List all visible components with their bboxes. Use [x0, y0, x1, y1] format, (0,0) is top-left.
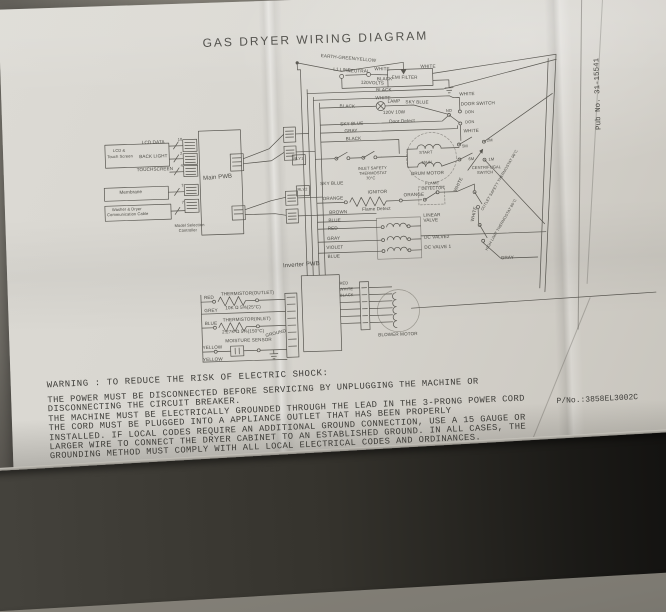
- wire-label: RLY1: [293, 157, 303, 161]
- wire-label: 70°C: [366, 176, 375, 180]
- wire-label: 4: [180, 164, 182, 168]
- wire-label: GREY: [204, 309, 218, 314]
- wire-label: SKY BLUE: [405, 100, 428, 105]
- wire-label: GRAY: [327, 237, 340, 242]
- wire-label: BLACK: [340, 104, 356, 109]
- wire-label: 1M: [488, 157, 494, 161]
- wire-label: NO: [446, 109, 452, 113]
- wire-label: WHITE: [374, 67, 389, 72]
- wire-label: RED: [339, 281, 348, 285]
- wire-label: DON: [465, 110, 474, 114]
- ignitor-label: IGNITOR: [367, 190, 387, 195]
- wire-label: NEUTRAL: [347, 69, 369, 74]
- wire-label: BLUE: [328, 255, 341, 260]
- wire-label: Touch Screen: [107, 154, 133, 159]
- wire-label: ORANGE: [323, 196, 344, 201]
- wire-label: WHITE: [420, 65, 435, 70]
- wire-label: SKY BLUE: [320, 181, 343, 186]
- wire-label: DETECTOR: [421, 186, 444, 191]
- wire-label: BLUE: [328, 218, 341, 223]
- wire-label: VIOLET: [326, 245, 343, 250]
- wire-label: BACK LIGHT: [139, 154, 167, 160]
- wire-label: WHITE: [463, 129, 478, 134]
- wire-label: Controller: [179, 228, 197, 233]
- paper-sheet: GAS DRYER WIRING DIAGRAM: [0, 0, 666, 487]
- wire-label: RLY2: [297, 188, 307, 192]
- wire-label: BLUE: [205, 322, 218, 327]
- wire-label: Membrane: [119, 190, 142, 195]
- wire-label: DC VALVE 1: [424, 245, 451, 250]
- wire-label: MAIN: [422, 160, 433, 164]
- wire-label: GRAY: [501, 256, 514, 261]
- wire-label: BLACK: [346, 137, 362, 142]
- wire-label: 2M: [487, 138, 493, 142]
- wire-label: BLACK: [377, 77, 393, 82]
- wire-label: WHITE: [340, 287, 354, 291]
- wire-label: Door Detect: [389, 119, 415, 124]
- wire-label: 2: [180, 152, 182, 156]
- emi-filter-label: EMI FILTER: [392, 76, 418, 81]
- wire-label: YELLOW: [203, 345, 223, 350]
- wire-label: START: [419, 150, 432, 154]
- wire-label: SWITCH: [477, 170, 494, 175]
- wire-label: 6M: [468, 157, 474, 161]
- wire-label: 7: [181, 184, 183, 188]
- wire-label: RED: [204, 296, 214, 301]
- wire-label: LAMP: [387, 99, 400, 104]
- wire-label: SKY BLUE: [340, 122, 363, 127]
- wire-label: Flame Detect: [362, 207, 391, 213]
- wire-label: BROWN: [329, 210, 347, 215]
- wire-label: VALVE: [423, 218, 438, 223]
- wire-label: 5M: [462, 144, 468, 148]
- wire-label: BLACK: [376, 88, 392, 93]
- wire-label: DC VALVE2: [424, 235, 450, 240]
- wire-label: WHITE: [459, 92, 474, 97]
- wire-label: LCD DATA: [142, 140, 165, 145]
- wire-label: GRAY: [344, 129, 357, 134]
- wire-label: BLACK: [340, 293, 354, 297]
- wire-label: RED: [328, 227, 338, 232]
- wire-label: 7: [182, 201, 184, 205]
- wire-label: LCD &: [113, 149, 125, 153]
- wire-label: ORANGE: [404, 193, 425, 198]
- wire-label: 120V 10W: [383, 110, 405, 115]
- wire-label: YELLOW: [203, 357, 223, 362]
- wire-label: DON: [465, 120, 474, 124]
- wire-label: 10: [178, 138, 183, 142]
